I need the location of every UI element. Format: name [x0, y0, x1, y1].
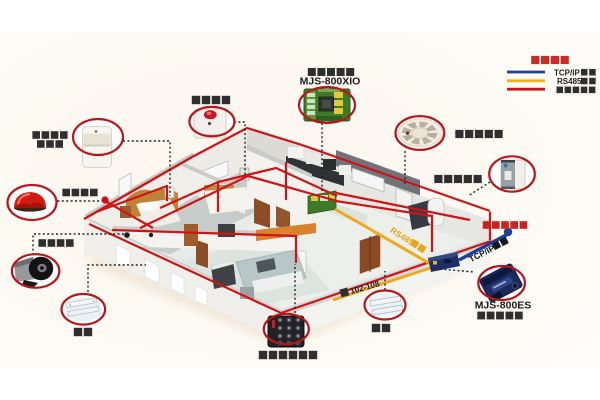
svg-text:MJS-800ES: MJS-800ES	[475, 300, 532, 312]
svg-text:RS485: RS485	[557, 77, 582, 86]
svg-text:MJS-800XIO: MJS-800XIO	[300, 76, 361, 88]
